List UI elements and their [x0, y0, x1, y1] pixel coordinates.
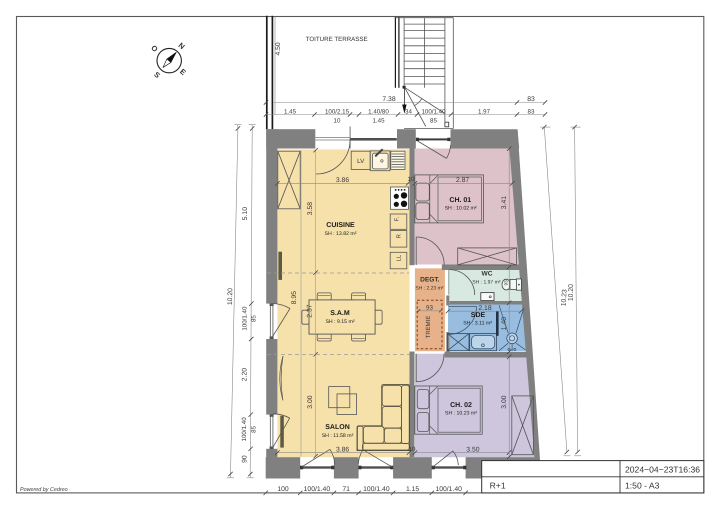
- svg-text:1.97: 1.97: [478, 108, 491, 115]
- svg-text:SH : 1.97 m²: SH : 1.97 m²: [472, 279, 500, 285]
- svg-text:SDE: SDE: [471, 312, 486, 319]
- svg-text:2.18: 2.18: [478, 305, 491, 312]
- svg-text:83: 83: [528, 108, 535, 115]
- svg-text:71: 71: [342, 486, 350, 493]
- svg-text:93: 93: [504, 280, 509, 286]
- svg-text:85: 85: [251, 425, 258, 432]
- svg-text:1:50 - A3: 1:50 - A3: [625, 480, 660, 490]
- svg-text:2.87: 2.87: [456, 177, 469, 184]
- svg-text:R: R: [397, 234, 403, 238]
- svg-text:1.40: 1.40: [501, 317, 508, 330]
- svg-text:85: 85: [251, 315, 258, 322]
- svg-text:100/1.40: 100/1.40: [421, 108, 446, 115]
- svg-text:DEGT.: DEGT.: [420, 276, 440, 283]
- svg-text:LL: LL: [397, 254, 403, 261]
- svg-text:10.20: 10.20: [568, 284, 575, 301]
- svg-text:5.10: 5.10: [242, 207, 249, 220]
- svg-text:3.86: 3.86: [336, 446, 349, 453]
- svg-text:SH : 2.23 m²: SH : 2.23 m²: [415, 285, 443, 291]
- svg-text:SH : 9.15 m²: SH : 9.15 m²: [325, 319, 354, 325]
- svg-text:100/2.15: 100/2.15: [325, 108, 350, 115]
- svg-text:3.50: 3.50: [466, 446, 479, 453]
- svg-text:SALON: SALON: [325, 424, 350, 431]
- svg-text:90: 90: [242, 455, 249, 463]
- svg-text:100: 100: [277, 486, 289, 493]
- svg-text:4.50: 4.50: [275, 42, 282, 55]
- svg-text:10: 10: [334, 117, 341, 124]
- svg-text:10: 10: [409, 446, 416, 453]
- svg-text:100/1.40: 100/1.40: [304, 486, 331, 493]
- svg-text:R+1: R+1: [490, 480, 506, 490]
- svg-text:CH. 01: CH. 01: [449, 197, 471, 204]
- svg-text:1.40/80: 1.40/80: [368, 108, 389, 115]
- svg-text:34: 34: [405, 108, 412, 115]
- svg-text:1.15: 1.15: [406, 486, 419, 493]
- svg-text:100/1.40: 100/1.40: [435, 486, 462, 493]
- svg-text:SH : 3.11 m²: SH : 3.11 m²: [463, 320, 492, 326]
- svg-text:1.45: 1.45: [372, 117, 385, 124]
- svg-text:93: 93: [426, 304, 433, 311]
- svg-text:10: 10: [408, 176, 415, 183]
- svg-text:10.20: 10.20: [227, 288, 234, 305]
- svg-text:85: 85: [430, 117, 437, 124]
- svg-text:Powered by Cedreo: Powered by Cedreo: [20, 487, 68, 493]
- svg-text:CUISINE: CUISINE: [326, 222, 355, 229]
- svg-text:S.A.M: S.A.M: [330, 310, 350, 317]
- svg-text:100/1.40: 100/1.40: [241, 306, 248, 331]
- svg-text:1.45: 1.45: [284, 108, 297, 115]
- svg-text:CH. 02: CH. 02: [450, 402, 472, 409]
- svg-text:8.95: 8.95: [291, 291, 298, 304]
- svg-text:WC: WC: [482, 270, 493, 277]
- svg-text:3.86: 3.86: [336, 177, 349, 184]
- svg-text:SH : 11.58 m²: SH : 11.58 m²: [322, 433, 354, 439]
- svg-text:83: 83: [527, 96, 535, 103]
- svg-text:SH : 10.23 m²: SH : 10.23 m²: [445, 410, 477, 416]
- svg-text:TOITURE TERRASSE: TOITURE TERRASSE: [306, 36, 368, 43]
- svg-text:3.00: 3.00: [307, 395, 314, 408]
- svg-text:SH : 10.02 m²: SH : 10.02 m²: [445, 206, 477, 212]
- svg-text:2024−04−23T16:36: 2024−04−23T16:36: [625, 464, 700, 474]
- svg-text:7.38: 7.38: [382, 96, 395, 103]
- svg-text:SH : 13.82 m²: SH : 13.82 m²: [324, 231, 356, 237]
- svg-text:3.00: 3.00: [501, 395, 508, 408]
- svg-text:3.58: 3.58: [307, 202, 314, 215]
- svg-text:100/1.40: 100/1.40: [241, 417, 248, 442]
- svg-text:3.41: 3.41: [501, 196, 508, 209]
- svg-text:F.: F.: [395, 216, 401, 221]
- svg-text:100/1.40: 100/1.40: [363, 486, 390, 493]
- svg-text:LV: LV: [357, 158, 365, 165]
- svg-text:TREMIE: TREMIE: [425, 316, 432, 339]
- svg-text:2.37: 2.37: [307, 304, 314, 317]
- svg-text:2.20: 2.20: [242, 368, 249, 381]
